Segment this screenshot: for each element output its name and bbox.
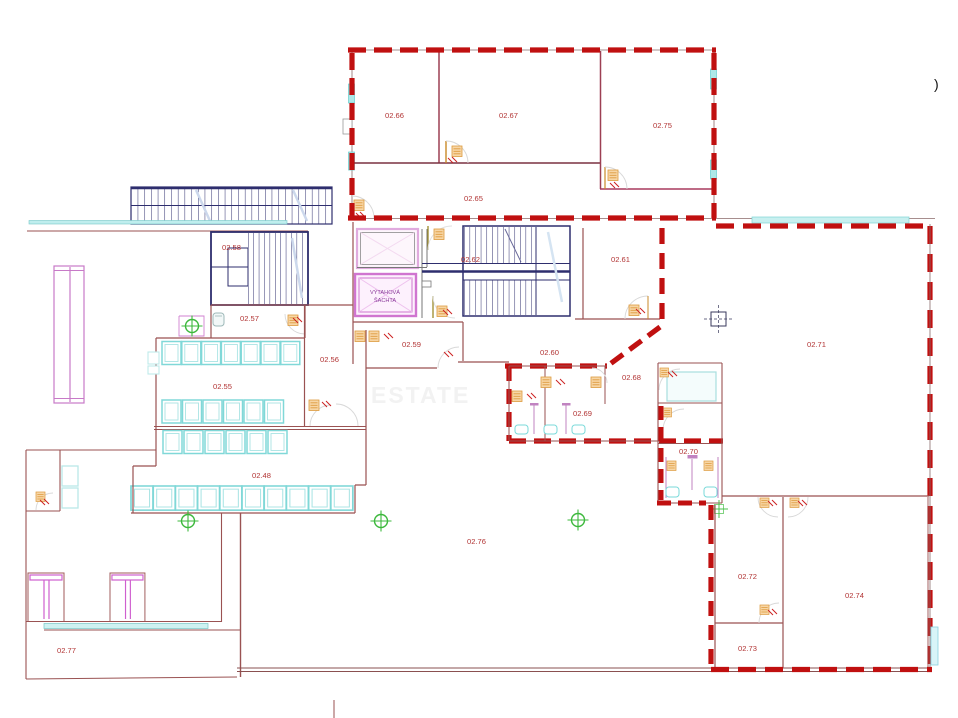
svg-text:02.69: 02.69 bbox=[573, 409, 592, 418]
svg-text:02.65: 02.65 bbox=[464, 194, 483, 203]
svg-text:02.66: 02.66 bbox=[385, 111, 404, 120]
svg-text:02.58: 02.58 bbox=[222, 243, 241, 252]
svg-text:02.73: 02.73 bbox=[738, 644, 757, 653]
svg-text:VÝTAHOVÁ: VÝTAHOVÁ bbox=[370, 289, 400, 296]
svg-text:02.61: 02.61 bbox=[611, 255, 630, 264]
svg-text:02.77: 02.77 bbox=[57, 646, 76, 655]
svg-text:02.68: 02.68 bbox=[622, 373, 641, 382]
svg-text:02.48: 02.48 bbox=[252, 471, 271, 480]
svg-text:02.62: 02.62 bbox=[461, 255, 480, 264]
svg-text:02.56: 02.56 bbox=[320, 355, 339, 364]
svg-text:02.76: 02.76 bbox=[467, 537, 486, 546]
svg-text:ŠACHTA: ŠACHTA bbox=[374, 297, 397, 304]
svg-text:): ) bbox=[934, 76, 939, 92]
svg-text:02.57: 02.57 bbox=[240, 314, 259, 323]
svg-text:02.71: 02.71 bbox=[807, 340, 826, 349]
svg-text:ESTATE: ESTATE bbox=[371, 382, 470, 408]
svg-text:02.75: 02.75 bbox=[653, 121, 672, 130]
svg-text:02.55: 02.55 bbox=[213, 382, 232, 391]
svg-text:02.72: 02.72 bbox=[738, 572, 757, 581]
svg-text:02.60: 02.60 bbox=[540, 348, 559, 357]
svg-text:02.70: 02.70 bbox=[679, 447, 698, 456]
svg-text:02.59: 02.59 bbox=[402, 340, 421, 349]
svg-text:02.74: 02.74 bbox=[845, 591, 864, 600]
svg-text:02.67: 02.67 bbox=[499, 111, 518, 120]
